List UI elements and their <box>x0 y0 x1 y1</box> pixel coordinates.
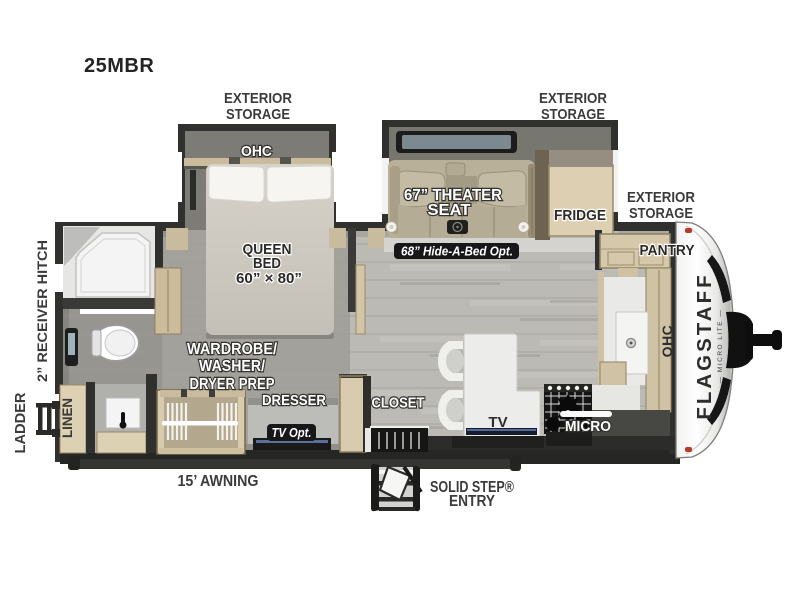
svg-text:STORAGE: STORAGE <box>226 106 290 123</box>
svg-text:2” RECEIVER HITCH: 2” RECEIVER HITCH <box>34 240 50 382</box>
svg-text:STORAGE: STORAGE <box>541 106 605 123</box>
svg-text:DRESSER: DRESSER <box>262 392 326 409</box>
svg-text:SEAT: SEAT <box>428 202 472 219</box>
svg-text:STORAGE: STORAGE <box>629 205 693 222</box>
svg-text:WASHER/: WASHER/ <box>199 358 266 375</box>
svg-text:FLAGSTAFF: FLAGSTAFF <box>693 272 716 419</box>
svg-text:DRYER PREP: DRYER PREP <box>190 376 275 393</box>
svg-text:FRIDGE: FRIDGE <box>554 207 606 224</box>
svg-text:TV: TV <box>488 414 507 431</box>
svg-text:TV Opt.: TV Opt. <box>272 426 312 440</box>
svg-text:OHC: OHC <box>241 143 272 160</box>
svg-text:PANTRY: PANTRY <box>640 242 695 259</box>
svg-text:CLOSET: CLOSET <box>372 395 425 412</box>
svg-text:— MICRO LITE —: — MICRO LITE — <box>717 309 724 384</box>
svg-text:LINEN: LINEN <box>60 398 75 438</box>
svg-text:68” Hide-A-Bed Opt.: 68” Hide-A-Bed Opt. <box>401 244 513 259</box>
svg-text:EXTERIOR: EXTERIOR <box>224 90 292 107</box>
svg-text:EXTERIOR: EXTERIOR <box>627 189 695 206</box>
svg-text:MICRO: MICRO <box>565 418 611 435</box>
svg-text:ENTRY: ENTRY <box>449 493 495 510</box>
svg-text:15’ AWNING: 15’ AWNING <box>178 473 259 490</box>
svg-text:60” × 80”: 60” × 80” <box>236 270 302 287</box>
svg-text:OHC: OHC <box>659 325 675 358</box>
svg-text:25MBR: 25MBR <box>84 55 154 77</box>
svg-text:WARDROBE/: WARDROBE/ <box>187 341 278 358</box>
svg-text:LADDER: LADDER <box>13 392 29 454</box>
svg-text:EXTERIOR: EXTERIOR <box>539 90 607 107</box>
